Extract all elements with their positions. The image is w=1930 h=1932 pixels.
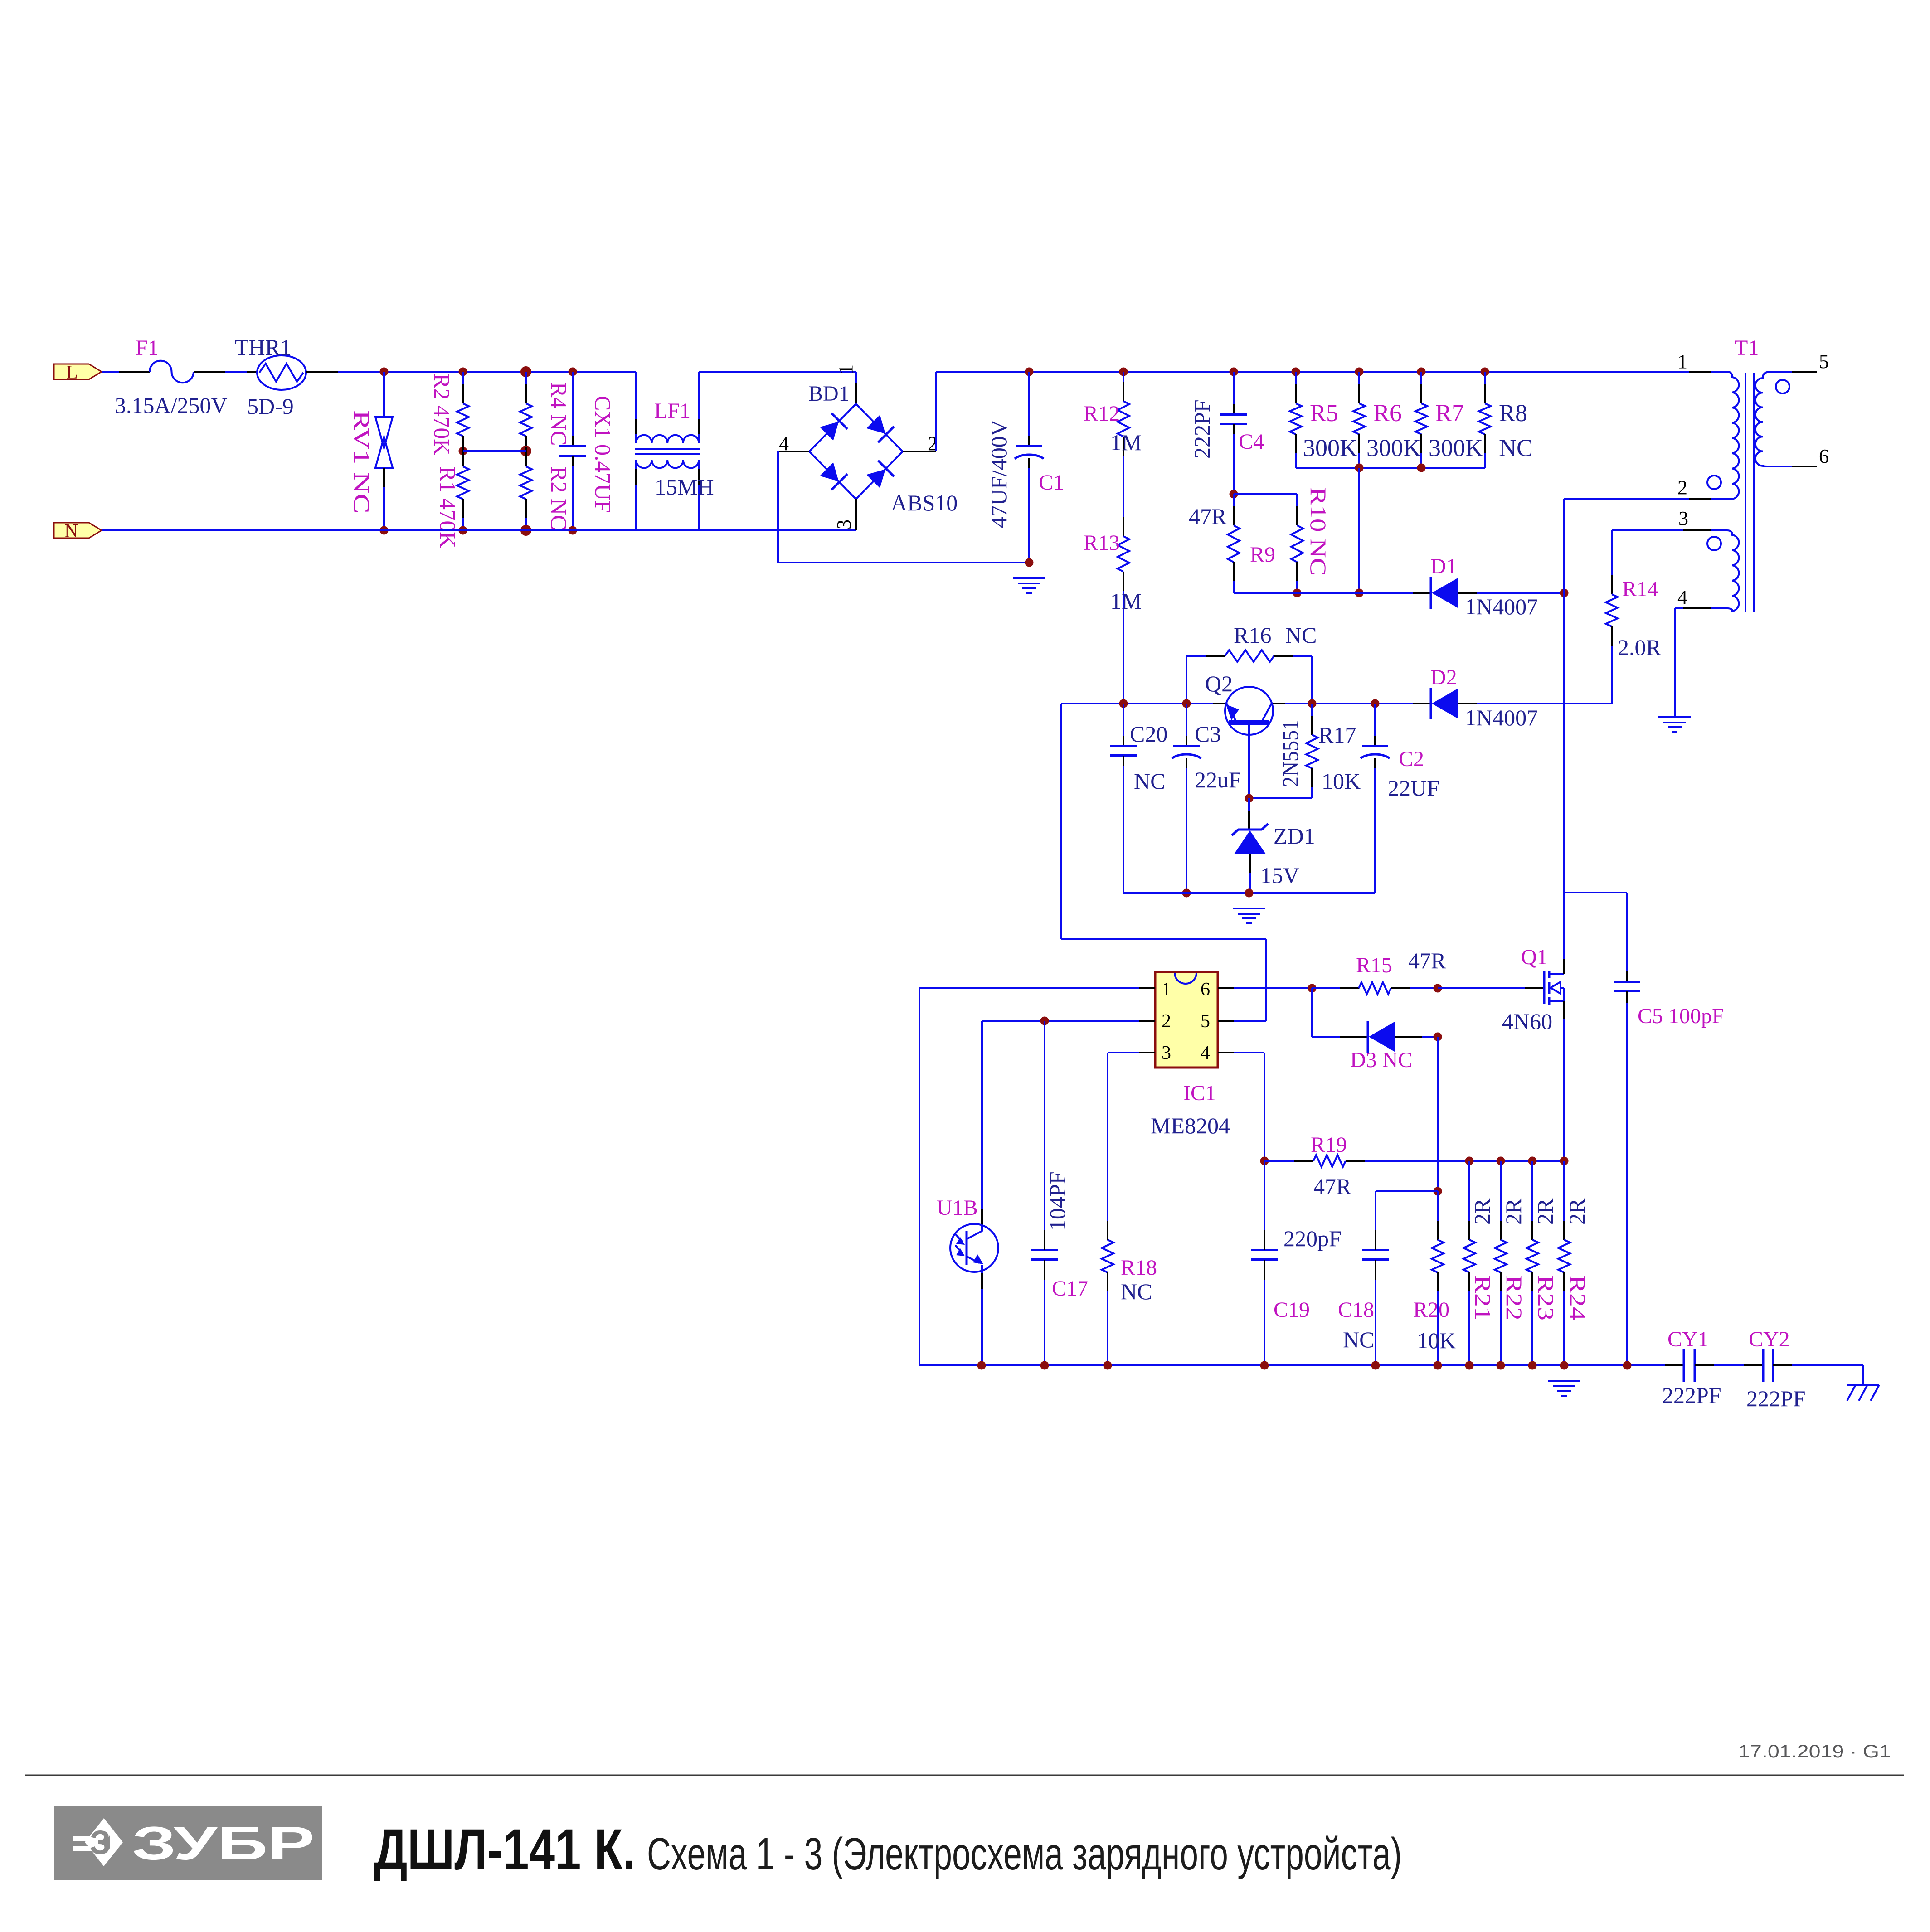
svg-text:R13: R13 [1084, 531, 1120, 555]
svg-text:R2 470K: R2 470K [429, 374, 455, 455]
svg-text:1M: 1M [1110, 588, 1142, 614]
svg-text:47R: 47R [1189, 504, 1227, 529]
svg-text:222PF: 222PF [1746, 1386, 1806, 1411]
svg-text:ZD1: ZD1 [1274, 823, 1315, 849]
svg-text:D3 NC: D3 NC [1350, 1048, 1412, 1072]
svg-text:300K: 300K [1303, 434, 1357, 461]
svg-text:C3: C3 [1195, 721, 1221, 747]
svg-text:ME8204: ME8204 [1151, 1113, 1230, 1138]
svg-text:22UF: 22UF [1388, 775, 1439, 801]
svg-text:47UF/400V: 47UF/400V [986, 420, 1011, 528]
svg-text:LF1: LF1 [654, 399, 690, 423]
svg-text:1N4007: 1N4007 [1465, 594, 1538, 619]
svg-text:NC: NC [1499, 434, 1533, 461]
svg-text:222PF: 222PF [1189, 399, 1215, 459]
svg-text:R21: R21 [1470, 1275, 1496, 1320]
svg-text:R22: R22 [1502, 1275, 1527, 1320]
svg-text:1M: 1M [1110, 430, 1142, 455]
svg-text:3: 3 [1678, 507, 1688, 529]
svg-text:4: 4 [779, 432, 789, 455]
svg-text:ДШЛ-141 К.: ДШЛ-141 К. [374, 1817, 636, 1882]
svg-text:D1: D1 [1430, 554, 1457, 578]
svg-text:6: 6 [1201, 979, 1210, 1000]
svg-text:R5: R5 [1310, 399, 1338, 427]
svg-text:R17: R17 [1318, 722, 1356, 748]
svg-text:C18: C18 [1338, 1298, 1374, 1322]
svg-text:2: 2 [1677, 476, 1687, 499]
svg-text:5: 5 [1819, 350, 1829, 373]
svg-text:THR1: THR1 [235, 335, 292, 360]
svg-text:R7: R7 [1435, 399, 1464, 427]
svg-text:4: 4 [1677, 586, 1687, 608]
svg-text:ABS10: ABS10 [891, 490, 958, 515]
svg-text:D2: D2 [1430, 665, 1457, 689]
svg-text:NC: NC [1134, 768, 1165, 794]
svg-text:C1: C1 [1039, 471, 1064, 495]
svg-text:R4 NC: R4 NC [546, 382, 572, 446]
svg-text:NC: NC [1285, 622, 1317, 648]
svg-text:BD1: BD1 [808, 382, 850, 406]
svg-text:R15: R15 [1356, 953, 1392, 977]
svg-text:Q2: Q2 [1205, 671, 1233, 696]
svg-text:1: 1 [835, 364, 857, 374]
svg-text:1: 1 [1162, 979, 1171, 1000]
svg-text:F1: F1 [136, 336, 159, 360]
svg-text:U1B: U1B [937, 1196, 978, 1220]
svg-text:R12: R12 [1084, 402, 1120, 426]
svg-text:10K: 10K [1322, 768, 1361, 794]
svg-text:3: 3 [833, 519, 855, 529]
svg-text:1: 1 [1677, 350, 1687, 373]
svg-text:4N60: 4N60 [1502, 1009, 1552, 1034]
svg-text:R24: R24 [1565, 1275, 1590, 1320]
svg-text:22uF: 22uF [1195, 767, 1241, 792]
svg-text:300K: 300K [1366, 434, 1421, 461]
svg-text:222PF: 222PF [1662, 1383, 1721, 1408]
svg-text:NC: NC [1343, 1327, 1374, 1352]
svg-text:R23: R23 [1533, 1275, 1559, 1320]
svg-text:R18: R18 [1121, 1256, 1157, 1280]
svg-text:47R: 47R [1313, 1174, 1351, 1199]
svg-text:2R: 2R [1532, 1198, 1558, 1225]
svg-text:2N5551: 2N5551 [1278, 720, 1303, 787]
svg-text:ЗУБР: ЗУБР [132, 1817, 315, 1870]
svg-text:N: N [64, 521, 78, 542]
svg-text:4: 4 [1201, 1043, 1210, 1063]
svg-text:T1: T1 [1735, 336, 1759, 360]
svg-text:6: 6 [1819, 445, 1829, 467]
svg-text:3: 3 [1162, 1043, 1171, 1063]
svg-text:17.01.2019 · G1: 17.01.2019 · G1 [1738, 1742, 1891, 1762]
svg-text:CX1 0.47UF: CX1 0.47UF [590, 396, 616, 513]
svg-text:15V: 15V [1260, 863, 1299, 888]
svg-text:C17: C17 [1052, 1277, 1088, 1301]
svg-text:C4: C4 [1239, 430, 1264, 454]
svg-text:1N4007: 1N4007 [1465, 705, 1538, 730]
svg-text:2R: 2R [1501, 1198, 1526, 1225]
svg-text:R16: R16 [1234, 622, 1271, 648]
svg-text:2.0R: 2.0R [1618, 635, 1662, 660]
svg-text:C20: C20 [1130, 721, 1167, 747]
svg-text:Схема 1 - 3 (Электросхема заря: Схема 1 - 3 (Электросхема зарядного устр… [647, 1829, 1402, 1879]
svg-text:IC1: IC1 [1183, 1081, 1216, 1105]
svg-text:NC: NC [1121, 1279, 1152, 1304]
svg-text:RV1 NC: RV1 NC [349, 410, 374, 514]
svg-text:R10 NC: R10 NC [1306, 487, 1331, 576]
svg-text:5D-9: 5D-9 [247, 393, 294, 419]
svg-text:Q1: Q1 [1521, 945, 1548, 969]
svg-text:R2 NC: R2 NC [546, 466, 572, 530]
svg-text:2R: 2R [1469, 1198, 1495, 1225]
svg-text:300K: 300K [1429, 434, 1483, 461]
svg-text:3.15A/250V: 3.15A/250V [115, 393, 228, 418]
svg-text:220pF: 220pF [1283, 1226, 1342, 1251]
svg-text:C5 100pF: C5 100pF [1638, 1004, 1724, 1028]
svg-text:R20: R20 [1413, 1298, 1449, 1322]
svg-text:R19: R19 [1311, 1133, 1347, 1157]
svg-text:C19: C19 [1274, 1298, 1310, 1322]
svg-text:R8: R8 [1499, 399, 1527, 427]
svg-text:2: 2 [1162, 1011, 1171, 1032]
svg-text:CY1: CY1 [1667, 1327, 1709, 1351]
svg-text:104PF: 104PF [1045, 1171, 1070, 1231]
svg-text:47R: 47R [1408, 948, 1446, 973]
svg-text:C2: C2 [1399, 747, 1424, 771]
svg-text:2R: 2R [1564, 1198, 1590, 1225]
svg-text:5: 5 [1201, 1011, 1210, 1032]
svg-text:R1 470K: R1 470K [435, 466, 461, 548]
svg-text:R9: R9 [1250, 543, 1275, 567]
svg-text:15MH: 15MH [655, 474, 714, 500]
svg-text:R6: R6 [1373, 399, 1402, 427]
svg-text:CY2: CY2 [1749, 1327, 1790, 1351]
svg-text:10K: 10K [1417, 1328, 1456, 1353]
svg-text:R14: R14 [1622, 577, 1658, 601]
svg-text:L: L [66, 362, 78, 383]
